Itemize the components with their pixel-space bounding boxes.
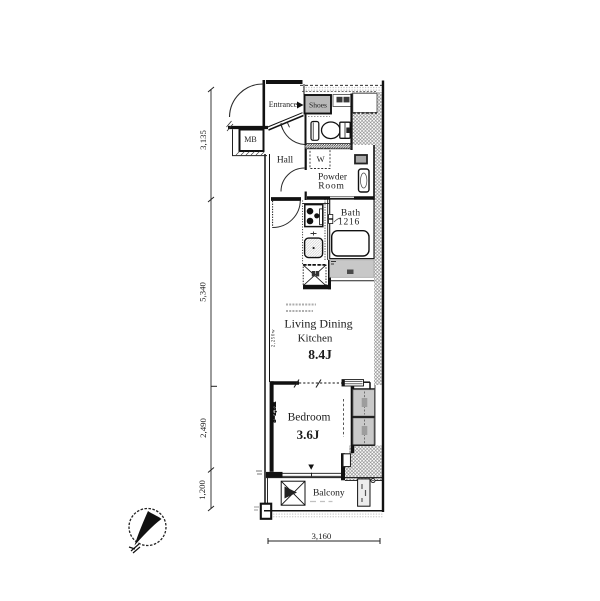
svg-text:Living Dining: Living Dining	[284, 317, 352, 331]
svg-text:1216: 1216	[338, 217, 360, 227]
svg-text:S=2,5M: S=2,5M	[271, 402, 277, 423]
svg-text:2,250w: 2,250w	[271, 329, 276, 347]
svg-text:Hall: Hall	[277, 155, 294, 165]
svg-text:Shoes: Shoes	[309, 101, 327, 110]
svg-text:1,200: 1,200	[197, 480, 207, 500]
svg-text:2,490: 2,490	[198, 418, 208, 438]
svg-text:Bedroom: Bedroom	[288, 412, 331, 424]
svg-text:3,160: 3,160	[312, 531, 332, 541]
svg-text:Entrance: Entrance	[269, 100, 298, 109]
svg-text:5,340: 5,340	[198, 282, 208, 302]
svg-text:3,135: 3,135	[198, 130, 208, 150]
svg-text:Balcony: Balcony	[313, 489, 345, 499]
svg-text:Room: Room	[318, 182, 344, 192]
svg-text:W: W	[317, 154, 325, 164]
svg-text:Kitchen: Kitchen	[298, 333, 333, 345]
svg-text:8.4J: 8.4J	[308, 347, 332, 362]
svg-text:3.6J: 3.6J	[297, 427, 320, 442]
svg-text:MB: MB	[244, 135, 256, 144]
